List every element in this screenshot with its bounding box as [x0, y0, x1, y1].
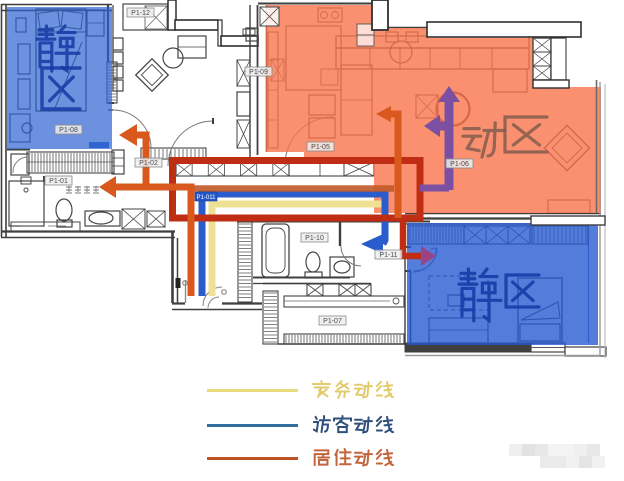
svg-text:P1-06: P1-06	[450, 161, 469, 168]
svg-text:P1-08: P1-08	[59, 127, 78, 134]
svg-text:P1-10: P1-10	[305, 235, 324, 242]
svg-text:P1-011: P1-011	[197, 195, 217, 201]
svg-text:P1-05: P1-05	[311, 144, 330, 151]
svg-text:P1-09: P1-09	[249, 69, 268, 76]
svg-text:P1-11: P1-11	[379, 252, 397, 259]
svg-text:P1-01: P1-01	[49, 178, 68, 185]
svg-text:P1-02: P1-02	[139, 160, 158, 167]
svg-text:P1-12: P1-12	[131, 10, 150, 17]
svg-text:P1-07: P1-07	[323, 318, 342, 325]
